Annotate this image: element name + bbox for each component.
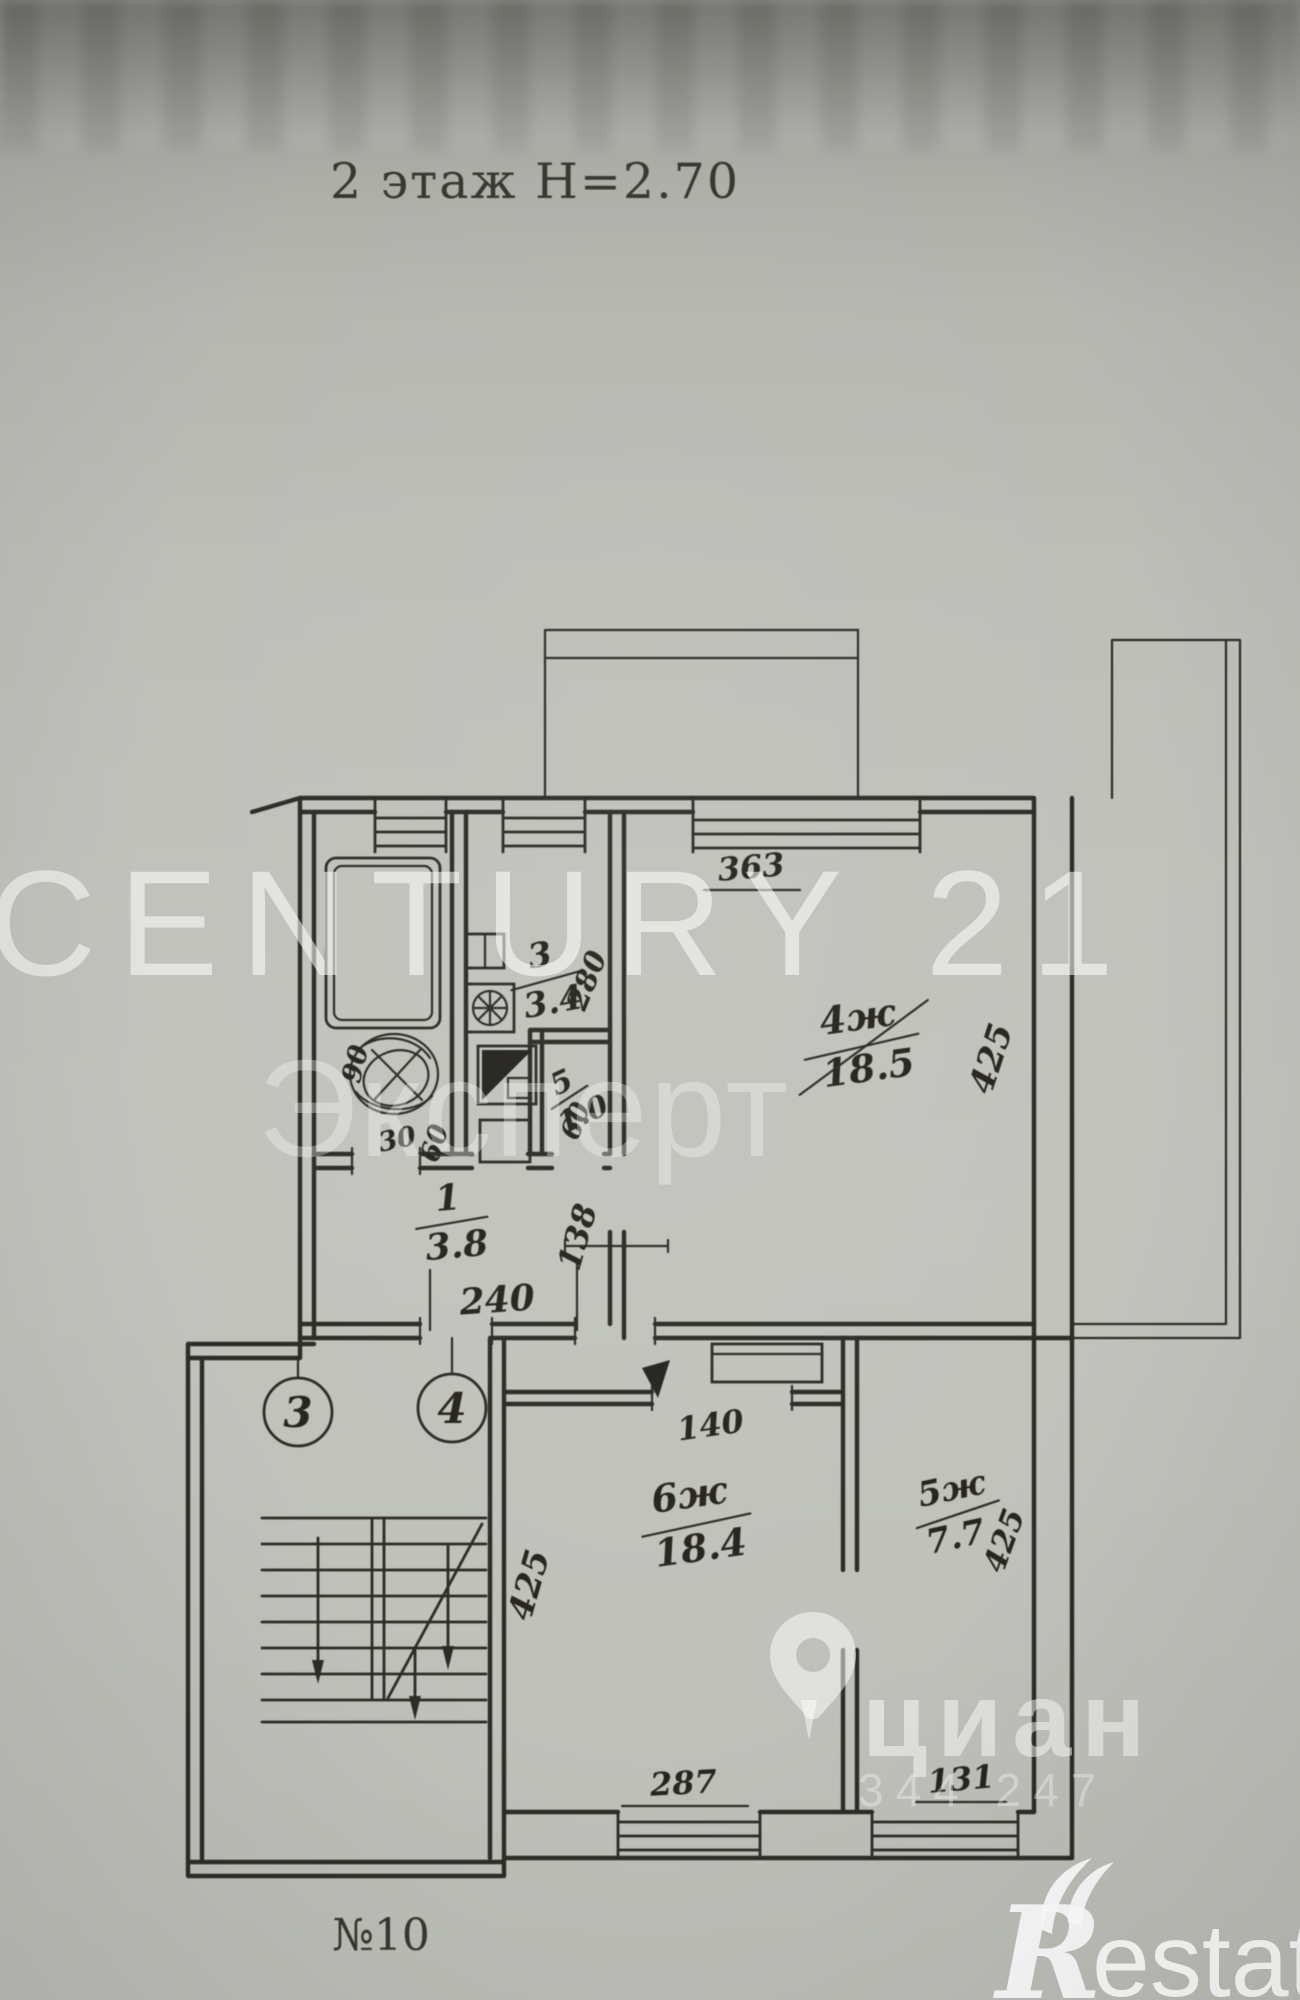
restate-logo: R estate (993, 1858, 1300, 2000)
cian-pin-icon (770, 1612, 856, 1740)
restate-rest: estate (1092, 1903, 1300, 2000)
restate-initial: R (993, 1879, 1102, 2000)
cian-wordmark: циан (862, 1661, 1155, 1779)
watermark-logos: циан 344 247 R estate (0, 0, 1300, 2000)
cian-digits: 344 247 (858, 1764, 1108, 1816)
floor-plan-photo: 2 этаж Н=2.70 №10 (0, 0, 1300, 2000)
